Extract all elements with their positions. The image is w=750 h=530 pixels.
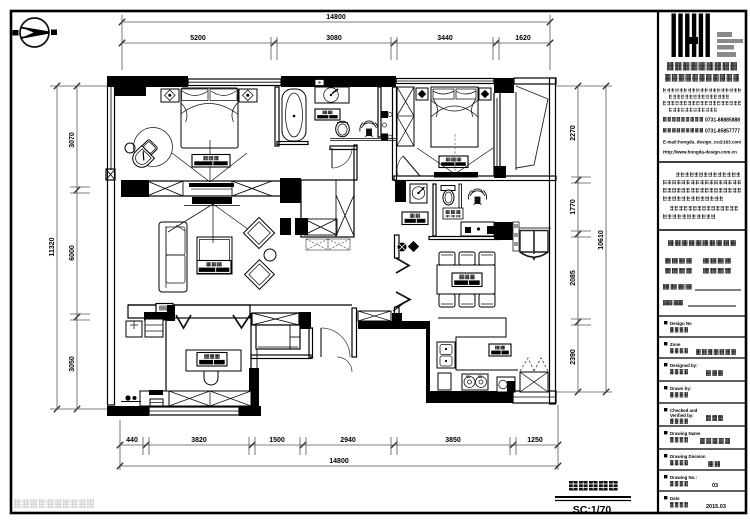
svg-text:03: 03	[712, 483, 718, 489]
svg-text:14800: 14800	[326, 14, 346, 21]
svg-text:Http://www.hongda-design.com.c: Http://www.hongda-design.com.cn	[663, 150, 737, 155]
svg-text:2015.03: 2015.03	[706, 504, 726, 510]
svg-text:1620: 1620	[515, 35, 531, 42]
svg-text:Design No: Design No	[670, 321, 692, 326]
svg-text:2085: 2085	[570, 270, 577, 286]
svg-text:Designed by:: Designed by:	[670, 363, 698, 368]
svg-text:3850: 3850	[445, 437, 461, 444]
svg-text:3440: 3440	[437, 35, 453, 42]
svg-text:SC:1/70: SC:1/70	[573, 504, 612, 516]
svg-text:3050: 3050	[69, 356, 76, 372]
svg-text:Zone: Zone	[670, 342, 681, 347]
svg-text:2940: 2940	[340, 437, 356, 444]
svg-text:0731-85857777: 0731-85857777	[705, 129, 740, 135]
svg-text:11320: 11320	[49, 237, 56, 256]
svg-text:6000: 6000	[69, 245, 76, 261]
svg-text:Date: Date	[670, 496, 680, 501]
svg-text:2390: 2390	[570, 349, 577, 365]
svg-text:3070: 3070	[69, 132, 76, 148]
svg-text:10610: 10610	[598, 230, 605, 250]
svg-text:2270: 2270	[570, 125, 577, 141]
svg-text:0731-88885888: 0731-88885888	[705, 118, 740, 124]
svg-text:Drawing Name: Drawing Name	[670, 431, 701, 436]
svg-text:1770: 1770	[570, 199, 577, 215]
svg-text:Drawn by:: Drawn by:	[670, 386, 692, 391]
svg-text:3080: 3080	[326, 35, 342, 42]
svg-text:1250: 1250	[527, 437, 543, 444]
svg-text:440: 440	[126, 437, 138, 444]
svg-text:Drawing No.:: Drawing No.:	[670, 475, 698, 480]
svg-text:3820: 3820	[191, 437, 207, 444]
svg-text:5200: 5200	[190, 35, 206, 42]
svg-text:E-mail:hongda_design_cs@163.co: E-mail:hongda_design_cs@163.com	[663, 140, 741, 145]
svg-text:14800: 14800	[329, 458, 349, 465]
svg-text:Verified by:: Verified by:	[670, 413, 694, 418]
svg-text:1500: 1500	[269, 437, 285, 444]
svg-text:Drawing Division: Drawing Division	[670, 454, 706, 459]
